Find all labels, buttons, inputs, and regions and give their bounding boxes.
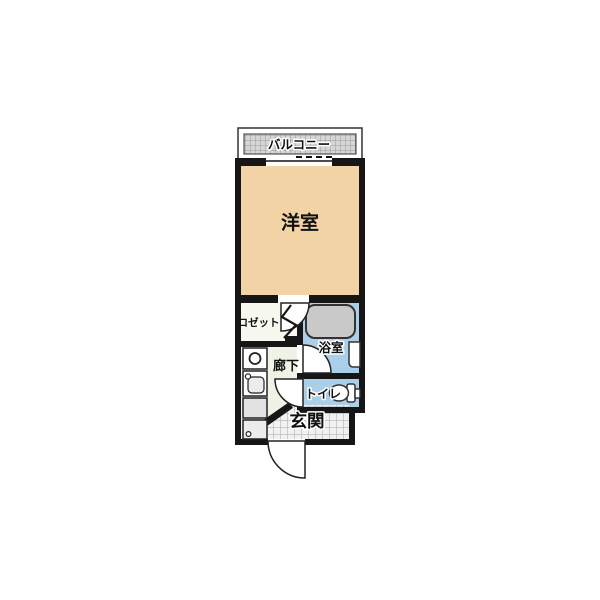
kitchen-units (243, 348, 267, 439)
closet-label: クロゼット (227, 316, 280, 329)
western-room-label: 洋室 (281, 211, 319, 234)
floorplan-drawing: クロゼット (0, 0, 600, 600)
hallway-label: 廊下 (273, 358, 299, 374)
counter-icon (243, 398, 267, 418)
washbasin-icon (349, 342, 360, 367)
bathroom-label: 浴室 (318, 340, 344, 355)
sliding-window-icon (266, 156, 332, 166)
entrance-door-icon (268, 441, 305, 478)
floorplan-page: クロゼット (0, 0, 600, 600)
bathtub-icon (306, 305, 355, 338)
balcony-label: バルコニー (268, 137, 330, 152)
toilet-label: トイレ (305, 387, 341, 401)
entrance-label: 玄関 (290, 411, 325, 432)
